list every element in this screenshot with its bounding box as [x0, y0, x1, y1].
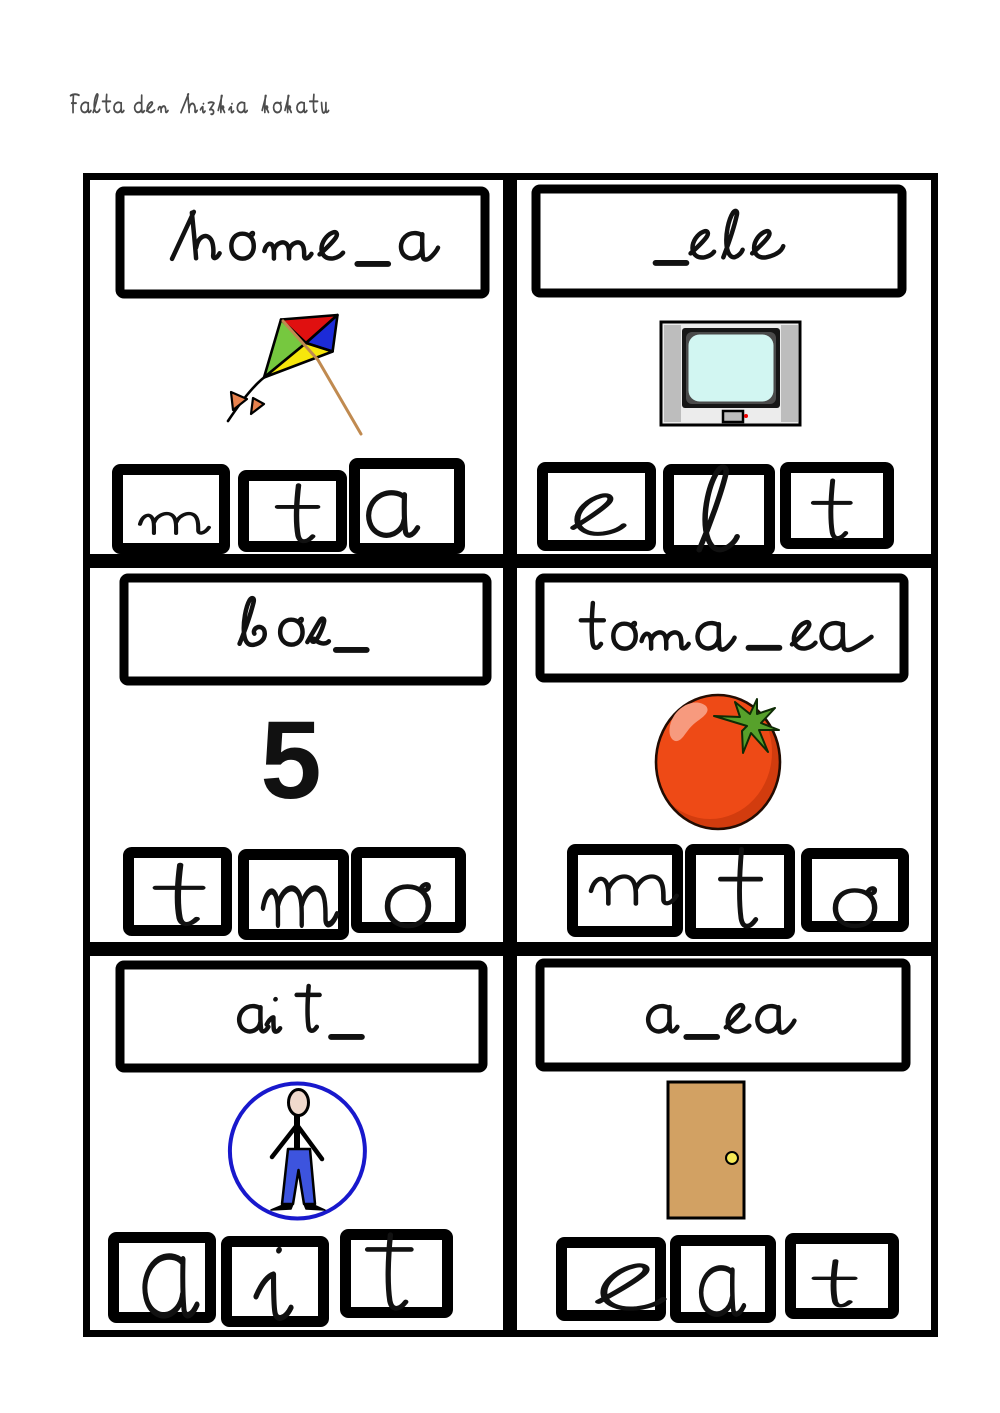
svg-text:5: 5 — [260, 699, 321, 822]
